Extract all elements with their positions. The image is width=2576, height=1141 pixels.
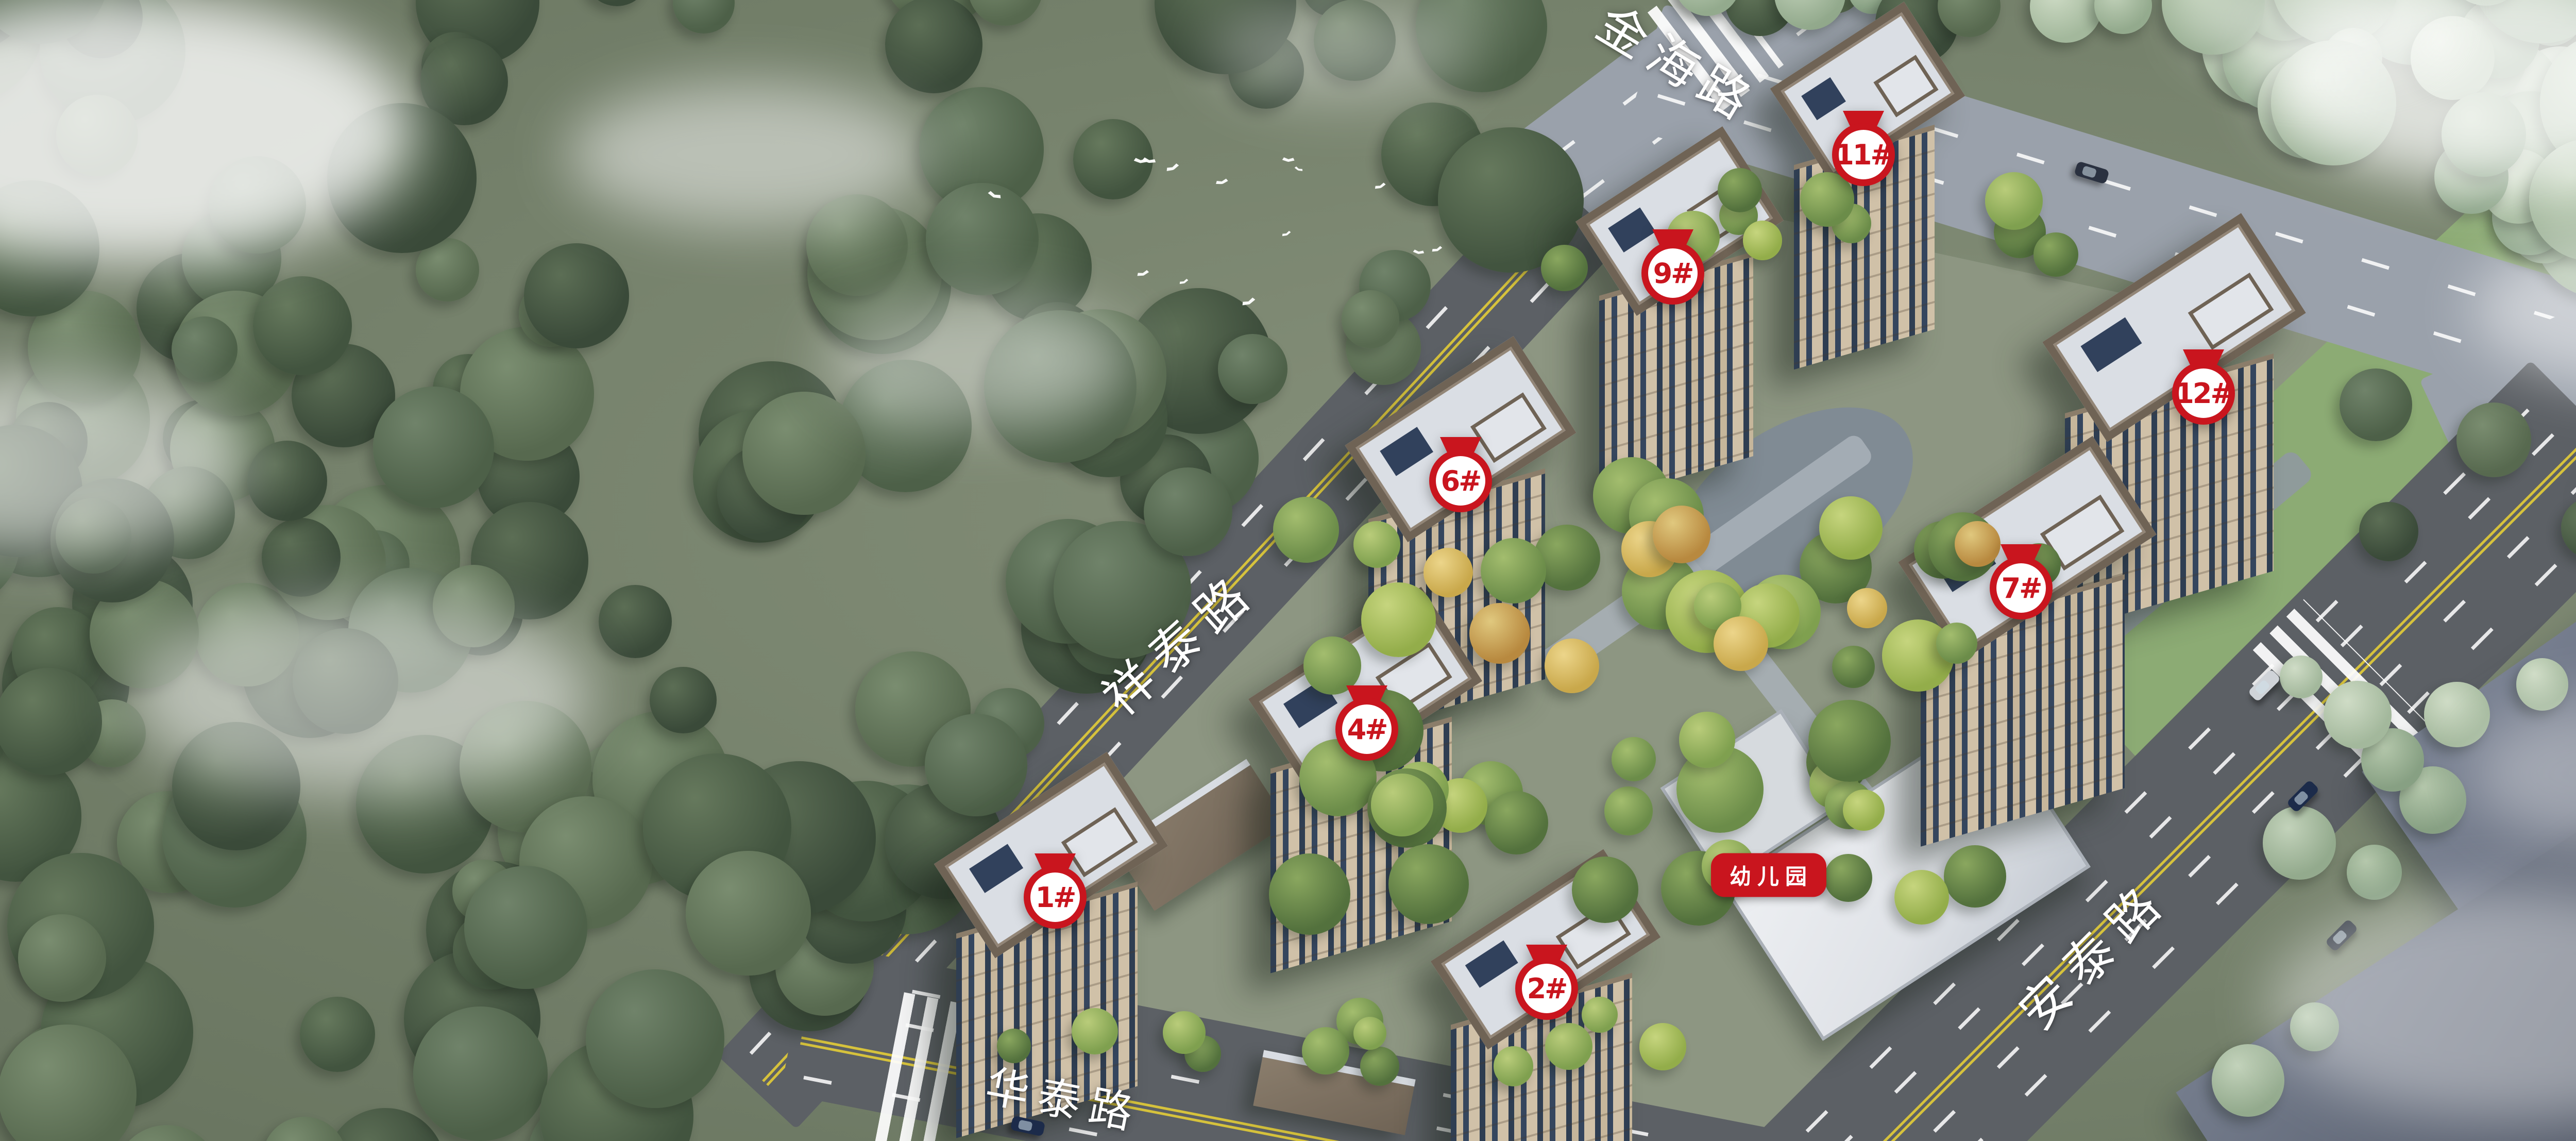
- tree-canopy: [2271, 40, 2396, 165]
- building-marker-label: 4#: [1335, 698, 1398, 761]
- tree-canopy: [2263, 806, 2336, 880]
- tree-canopy: [2424, 682, 2490, 748]
- tree-canopy: [18, 914, 106, 1002]
- tree-canopy: [1743, 221, 1783, 260]
- tree-canopy: [984, 310, 1137, 463]
- tree-canopy: [1494, 1046, 1534, 1086]
- tree-canopy: [2516, 658, 2569, 711]
- tree-canopy: [1847, 588, 1887, 628]
- tree-canopy: [686, 851, 811, 976]
- tree-canopy: [1612, 737, 1656, 781]
- tree-canopy: [1604, 786, 1653, 835]
- tree-canopy: [56, 498, 131, 574]
- tree-canopy: [209, 156, 306, 253]
- tree-canopy: [1653, 506, 1711, 564]
- tree-canopy: [2347, 845, 2402, 900]
- tree-canopy: [586, 969, 724, 1108]
- tree-canopy: [1302, 1027, 1349, 1075]
- tree-canopy: [524, 243, 629, 348]
- kindergarten-label: 幼儿园: [1711, 853, 1826, 897]
- tree-canopy: [1361, 582, 1435, 657]
- tree-canopy: [1360, 1047, 1399, 1086]
- birdseye-rendering: 金海路 祥泰路 安泰路 华泰路 幼儿园 鸟瞰图 1# 2# 4# 6# 7# 9…: [0, 0, 2576, 1141]
- tree-canopy: [1469, 603, 1530, 664]
- tree-canopy: [1679, 712, 1735, 767]
- tree-canopy: [1353, 521, 1400, 568]
- tree-canopy: [1639, 1023, 1687, 1070]
- tree-canopy: [806, 194, 908, 296]
- tree-canopy: [1481, 538, 1546, 603]
- building-marker-label: 7#: [1990, 557, 2053, 619]
- building-marker-label: 12#: [2172, 362, 2235, 425]
- tree-canopy: [1423, 548, 1473, 597]
- building-marker-label: 2#: [1515, 957, 1578, 1020]
- tree-canopy: [247, 441, 328, 521]
- tree-canopy: [293, 628, 398, 734]
- tree-canopy: [1944, 845, 2006, 908]
- tree-canopy: [1832, 646, 1874, 688]
- tree-canopy: [1273, 497, 1339, 563]
- tree-canopy: [1714, 616, 1768, 671]
- tree-canopy: [2456, 402, 2531, 477]
- building-marker-label: 6#: [1429, 449, 1492, 512]
- tree-canopy: [926, 183, 1038, 295]
- building-marker-label: 1#: [1024, 866, 1087, 929]
- tree-canopy: [1218, 334, 1288, 404]
- tree-canopy: [2324, 681, 2392, 749]
- tree-canopy: [262, 518, 341, 597]
- tree-canopy: [172, 316, 238, 383]
- tree-canopy: [433, 565, 515, 647]
- tree-canopy: [599, 585, 672, 658]
- tree-canopy: [2359, 502, 2418, 561]
- tree-canopy: [2212, 1044, 2284, 1117]
- tree-canopy: [0, 668, 102, 775]
- tree-canopy: [2411, 16, 2495, 100]
- tree-canopy: [1808, 700, 1890, 782]
- tree-canopy: [1819, 496, 1883, 560]
- tree-canopy: [1072, 1008, 1118, 1054]
- tree-canopy: [172, 722, 300, 850]
- tree-canopy: [1545, 639, 1599, 693]
- tree-canopy: [1718, 168, 1762, 212]
- tree-canopy: [413, 1006, 548, 1141]
- tree-canopy: [1073, 119, 1153, 199]
- tree-canopy: [1541, 245, 1587, 291]
- tree-canopy: [1144, 467, 1232, 556]
- tree-canopy: [1985, 172, 2043, 230]
- tree-canopy: [1269, 853, 1350, 935]
- tree-canopy: [650, 667, 716, 733]
- tree-canopy: [327, 103, 477, 253]
- building-marker-label: 11#: [1832, 123, 1895, 186]
- tree-canopy: [1163, 1011, 1206, 1054]
- tree-canopy: [300, 997, 375, 1072]
- tree-canopy: [1582, 997, 1618, 1033]
- tree-canopy: [2340, 368, 2412, 441]
- tree-canopy: [1388, 844, 1469, 925]
- tree-canopy: [56, 95, 138, 176]
- tree-canopy: [464, 866, 587, 989]
- tree-canopy: [1824, 854, 1872, 902]
- tree-canopy: [1485, 791, 1548, 854]
- tree-canopy: [1545, 1023, 1592, 1070]
- tree-canopy: [742, 392, 866, 515]
- tree-canopy: [1936, 623, 1977, 664]
- tree-canopy: [373, 387, 494, 508]
- tree-canopy: [253, 276, 352, 376]
- tree-canopy: [2033, 232, 2078, 277]
- tree-canopy: [2280, 656, 2323, 698]
- building-marker-label: 9#: [1641, 242, 1704, 305]
- tree-canopy: [1843, 790, 1884, 831]
- tree-canopy: [1955, 521, 2001, 567]
- tree-canopy: [1371, 774, 1433, 836]
- tree-canopy: [1314, 0, 1396, 81]
- tree-canopy: [2442, 92, 2526, 177]
- tree-canopy: [1342, 290, 1400, 348]
- tree-canopy: [1572, 857, 1638, 923]
- tree-canopy: [2290, 1002, 2339, 1051]
